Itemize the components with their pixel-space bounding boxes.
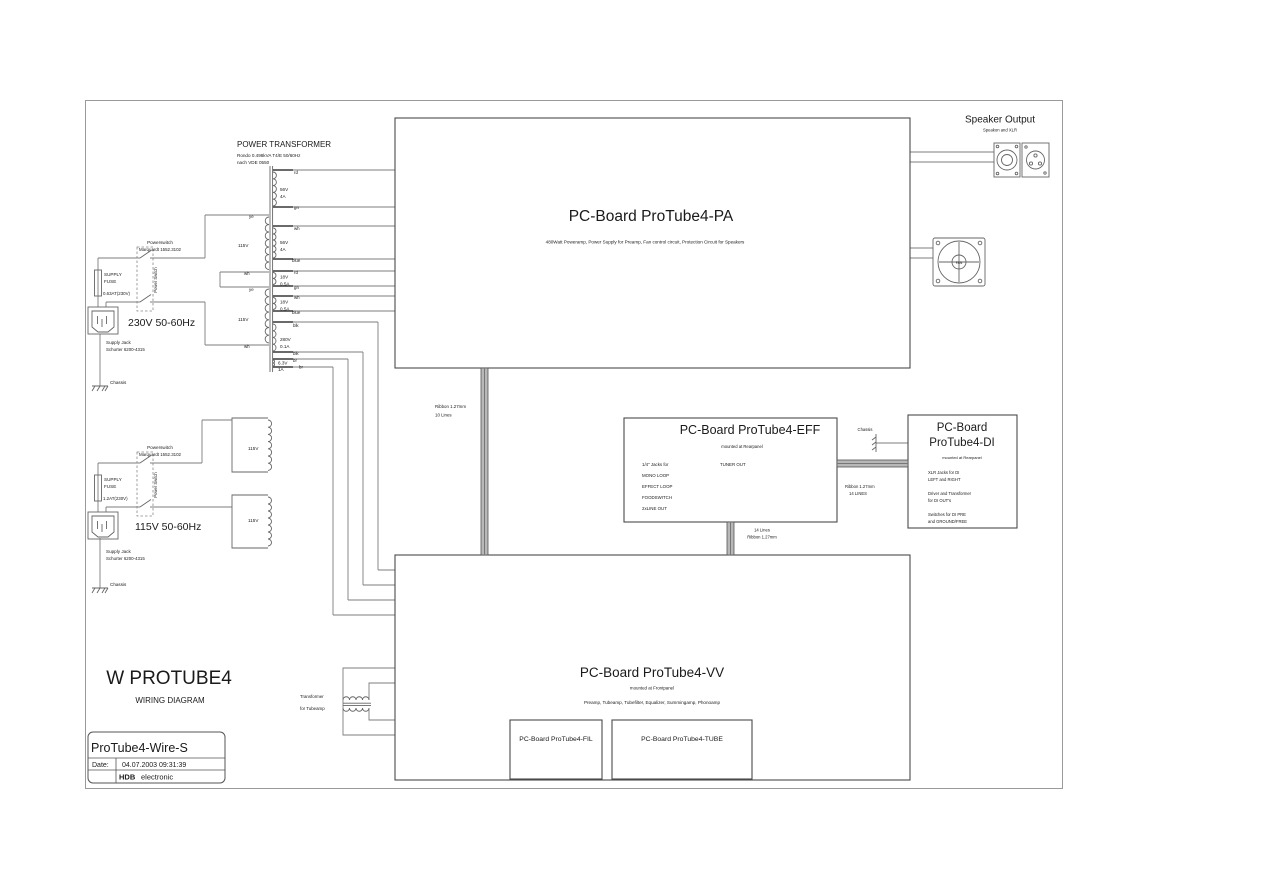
sec3-current: 0.5A <box>280 282 290 287</box>
fuse-115-rating: 1.2AT(230V) <box>103 496 128 501</box>
power-switch-box-230 <box>137 247 153 311</box>
primary2-bottom-color: wh <box>244 344 250 349</box>
company-name: electronic <box>141 773 173 782</box>
board-tube-title: PC-Board ProTube4-TUBE <box>641 736 723 743</box>
primary1-voltage: 115V <box>238 243 249 248</box>
board-eff-mounted: mounted at Rearpanel <box>721 444 763 449</box>
company-logo: HDB <box>119 773 136 782</box>
sec5-voltage: 280V <box>280 337 292 342</box>
board-eff-item-lineout: 2xLINE OUT <box>642 506 667 511</box>
sec2-bottom-color: blue <box>292 258 301 263</box>
project-title: W PROTUBE4 <box>106 668 232 689</box>
power-switch-230-vertical-label: Power Switch <box>153 267 158 293</box>
date-value: 04.07.2003 09:31:39 <box>122 762 186 769</box>
sec4-current: 0.5A <box>280 307 290 312</box>
board-eff-item-footswitch: FOODSWITCH <box>642 495 672 500</box>
ribbon-eff-vv-label1: 14 Lines <box>754 528 770 533</box>
primary2-voltage: 115V <box>238 317 249 322</box>
winding-box2-voltage: 115V <box>248 518 259 523</box>
sec1-current: 4A <box>280 194 287 199</box>
ground-symbol-115 <box>92 588 108 593</box>
fuse-230-rating: 0.63AT(230V) <box>103 291 131 296</box>
secondary-coil-6 <box>273 360 275 366</box>
board-fil <box>510 720 602 779</box>
transformer-spec1: Rondo 0.498kVA T4/E 50/60Hz <box>237 153 301 158</box>
power-switch-115-vertical-label: Power Switch <box>153 472 158 498</box>
primary2-top-color: ye <box>249 287 254 292</box>
secondary-coil-4 <box>273 298 276 310</box>
secondary-coil-1 <box>273 172 276 206</box>
sec1-voltage: 56V <box>280 187 289 192</box>
transformer-115v-windings <box>232 418 272 548</box>
speaker-output-title: Speaker Output <box>965 115 1035 126</box>
sec1-bottom-color: gn <box>294 205 299 210</box>
fuse-230-label2: FUSE <box>104 279 116 284</box>
doc-type-label: WIRING DIAGRAM <box>135 696 205 705</box>
transformer-spec2: nach VDE 0550 <box>237 160 270 165</box>
board-vv-title: PC-Board ProTube4-VV <box>580 665 724 680</box>
board-pa-title: PC-Board ProTube4-PA <box>569 208 734 225</box>
sec6-bottom-color: br <box>299 365 303 370</box>
board-di-mounted: mounted at Rearpanel <box>942 455 982 460</box>
xlr-connector <box>1022 143 1049 177</box>
chassis-symbol-di <box>872 434 876 452</box>
primary1-top-color: ye <box>249 214 254 219</box>
jack-230-label1: Supply Jack <box>106 340 131 345</box>
board-di-line2: LEFT and RIGHT <box>928 477 961 482</box>
jack-230-label2: Schurter 6200-4315 <box>106 347 145 352</box>
sec5-bottom-color: blk <box>293 351 299 356</box>
title-block: ProTube4-Wire-S Date: 04.07.2003 09:31:3… <box>88 732 225 783</box>
sec2-voltage: 56V <box>280 240 289 245</box>
tubeamp-transformer-symbol <box>343 668 395 735</box>
mains-115-voltage: 115V 50-60Hz <box>135 521 201 533</box>
board-di-line3: Driver and Transformer <box>928 491 972 496</box>
speakon-connector <box>994 143 1020 177</box>
board-fil-title: PC-Board ProTube4-FIL <box>519 736 593 743</box>
sec6-current: 1A <box>278 367 285 372</box>
board-eff-item-effect: EFFECT LOOP <box>642 484 672 489</box>
sec2-current: 4A <box>280 247 287 252</box>
sec6-top-color: br <box>293 358 297 363</box>
board-vv-subtitle: Preamp, Tubeamp, Tubefilter, Equalizer, … <box>584 700 721 705</box>
board-eff-item-mono: MONO LOOP <box>642 473 669 478</box>
drawing-name: ProTube4-Wire-S <box>91 741 188 755</box>
board-tube <box>612 720 752 779</box>
powerswitch-230-label: Powerswitch <box>147 240 173 245</box>
sec3-bottom-color: gn <box>294 285 299 290</box>
primary-coil-1 <box>265 217 269 270</box>
board-eff-jacks-intro: 1/4" Jacks for <box>642 462 669 467</box>
tube-transformer-label1: Transformer <box>300 694 324 699</box>
sec6-voltage: 6.3V <box>278 361 288 366</box>
board-vv-mounted: mounted at Frontpanel <box>630 686 674 691</box>
jack-115-label2: Schurter 6200-4315 <box>106 556 145 561</box>
secondary-coil-3 <box>273 273 276 285</box>
jack-115-label1: Supply Jack <box>106 549 131 554</box>
fan-label: FAN <box>956 261 963 265</box>
mains-230-voltage: 230V 50-60Hz <box>128 317 195 329</box>
power-switch-box-115 <box>137 452 153 516</box>
sec1-top-color: rd <box>294 170 298 175</box>
sec2-top-color: wh <box>294 226 300 231</box>
primary1-bottom-color: wh <box>244 271 250 276</box>
wiring-diagram-page: POWER TRANSFORMER Rondo 0.498kVA T4/E 50… <box>0 0 1263 893</box>
sec3-top-color: rd <box>294 270 298 275</box>
secondary-coil-2 <box>273 228 276 258</box>
chassis-di-label: Chassis <box>858 427 873 432</box>
speaker-output-subtitle: Speakon and XLR <box>983 128 1017 133</box>
board-eff-tuner-out: TUNER OUT <box>720 462 746 467</box>
powerswitch-115-label: Powerswitch <box>147 445 173 450</box>
winding-box-1 <box>232 418 268 472</box>
tube-transformer-label2: for Tubeamp <box>300 706 325 711</box>
fuse-230-label1: SUPPLY <box>104 272 122 277</box>
sec3-voltage: 18V <box>280 275 289 280</box>
ribbon-pa-vv-label2: 10 Lines <box>435 413 452 418</box>
board-eff-title: PC-Board ProTube4-EFF <box>680 423 821 437</box>
sec4-top-color: wh <box>294 295 300 300</box>
board-di-title2: ProTube4-DI <box>929 437 994 449</box>
sec4-bottom-color: blue <box>292 310 301 315</box>
transformer-title: POWER TRANSFORMER <box>237 140 331 149</box>
wiring-diagram-canvas: POWER TRANSFORMER Rondo 0.498kVA T4/E 50… <box>0 0 1263 893</box>
powerswitch-115-model: Marquardt 1552.3102 <box>139 452 182 457</box>
board-di-title1: PC-Board <box>937 422 988 434</box>
ribbon-eff-di-label1: Ribbon 1.27mm <box>845 484 875 489</box>
chassis-115-label: Chassis <box>110 582 127 587</box>
sec5-top-color: blk <box>293 323 299 328</box>
ribbon-pa-vv-label1: Ribbon 1.27mm <box>435 404 466 409</box>
fuse-115-label2: FUSE <box>104 484 116 489</box>
fuse-115-label1: SUPPLY <box>104 477 122 482</box>
sec5-current: 0.1A <box>280 344 290 349</box>
board-pa-subtitle: 480Watt Poweramp, Power Supply for Pream… <box>546 240 745 245</box>
powerswitch-230-model: Marquardt 1552.3102 <box>139 247 182 252</box>
winding-box1-voltage: 115V <box>248 446 259 451</box>
board-di-line6: and GROUND/FREE <box>928 519 967 524</box>
board-di-line5: Switches for DI PRE <box>928 512 966 517</box>
date-label: Date: <box>92 762 109 769</box>
switch-contacts-230 <box>140 251 151 303</box>
sec4-voltage: 18V <box>280 300 289 305</box>
board-di-line1: XLR Jacks for DI <box>928 470 959 475</box>
chassis-230-label: Chassis <box>110 380 127 385</box>
ribbon-eff-vv-label2: Ribbon 1.27mm <box>747 535 777 540</box>
secondary-coil-5 <box>273 324 276 351</box>
ground-symbol-230 <box>92 386 108 391</box>
switch-contacts-115 <box>140 456 151 508</box>
ribbon-eff-di-label2: 14 LINES <box>849 491 867 496</box>
primary-coil-2 <box>265 289 269 343</box>
transformer-core <box>270 166 273 372</box>
board-di-line4: for DI OUT's <box>928 498 951 503</box>
